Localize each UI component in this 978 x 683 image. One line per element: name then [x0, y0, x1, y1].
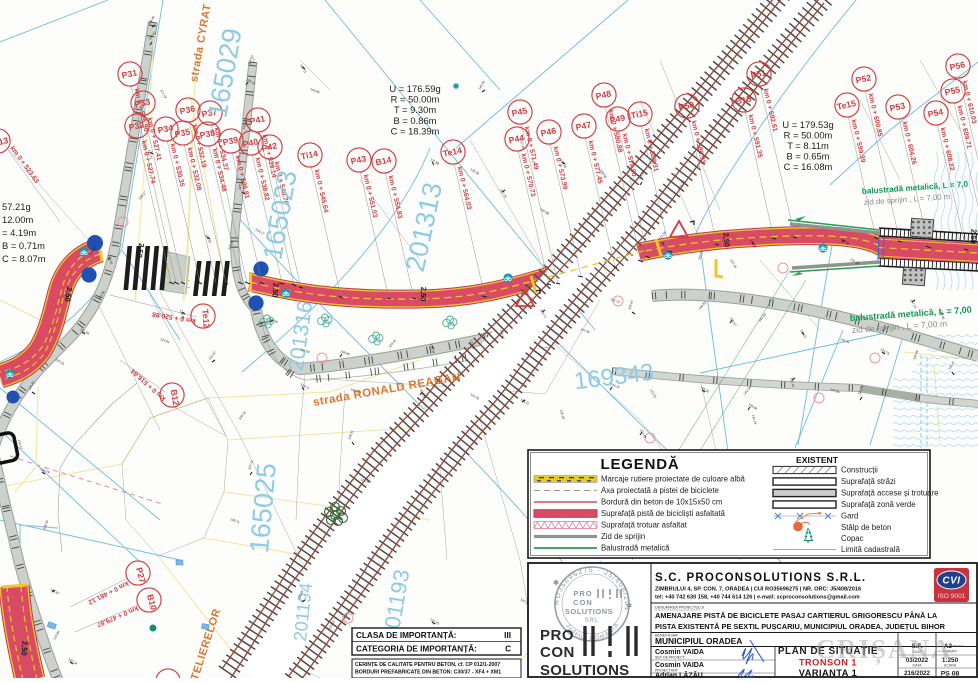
svg-text:S.C. PROCONSOLUTIONS S.R.L.: S.C. PROCONSOLUTIONS S.R.L. [655, 572, 866, 584]
svg-text:U = 179.53g: U = 179.53g [782, 119, 833, 130]
svg-text:Construcții: Construcții [841, 466, 878, 475]
svg-text:= 4.19m: = 4.19m [2, 227, 36, 238]
svg-text:Limită cadastrală: Limită cadastrală [841, 545, 901, 554]
svg-text:Marcaje rutiere proiectate de: Marcaje rutiere proiectate de culoare al… [601, 475, 746, 484]
svg-text:R = 50.00m: R = 50.00m [391, 94, 440, 105]
svg-text:LEGENDĂ: LEGENDĂ [601, 456, 680, 473]
svg-text:U = 176.59g: U = 176.59g [389, 83, 440, 94]
svg-text:ISO 9001: ISO 9001 [938, 593, 966, 600]
svg-text:Bordură din beton de 10x15x50: Bordură din beton de 10x15x50 cm [601, 498, 722, 507]
svg-text:MUNICIPIUL ORADEA: MUNICIPIUL ORADEA [655, 636, 742, 646]
svg-text:Te12: Te12 [200, 309, 212, 329]
svg-text:Suprafață străzi: Suprafață străzi [841, 477, 896, 486]
svg-text:CLASA DE IMPORTANȚĂ:: CLASA DE IMPORTANȚĂ: [356, 630, 457, 640]
svg-text:Suprafață trotuar asfaltat: Suprafață trotuar asfaltat [601, 521, 688, 530]
svg-text:216/2022: 216/2022 [904, 670, 930, 677]
svg-text:2,50: 2,50 [721, 232, 731, 247]
svg-text:R = 50.00m: R = 50.00m [784, 130, 833, 141]
svg-text:CON: CON [540, 644, 575, 661]
svg-text:DENUMIREA PROIECTULUI: DENUMIREA PROIECTULUI [655, 606, 704, 610]
svg-text:Axa proiectată a pistei de bic: Axa proiectată a pistei de biciclete [601, 486, 719, 495]
svg-text:297x420: 297x420 [953, 644, 964, 648]
svg-text:SCARA: SCARA [944, 664, 957, 668]
svg-text:T = 8.11m: T = 8.11m [787, 140, 829, 151]
svg-text:B = 0.86m: B = 0.86m [394, 115, 437, 126]
svg-text:CATEGORIA DE IMPORTANȚĂ:: CATEGORIA DE IMPORTANȚĂ: [356, 644, 477, 654]
svg-text:CON: CON [573, 598, 593, 607]
svg-text:ZIMBRULUI 4, SP. CON. 7, ORAD: ZIMBRULUI 4, SP. CON. 7, ORADEA | CUI RO… [655, 587, 861, 593]
svg-text:tel: +40 742 630 158, +40 744: tel: +40 742 630 158, +40 744 614 126 | … [655, 595, 860, 601]
svg-text:SOLUTIONS: SOLUTIONS [540, 662, 629, 678]
svg-text:Zid de sprijin: Zid de sprijin [601, 532, 645, 541]
svg-text:VARIANTA 1: VARIANTA 1 [799, 668, 857, 678]
svg-text:BORDURI PREFABRICATE DIN BETON: BORDURI PREFABRICATE DIN BETON: C30/37 -… [355, 670, 501, 676]
svg-text:PISTA EXISTENTĂ PE SEXTIL PUȘC: PISTA EXISTENTĂ PE SEXTIL PUȘCARIU, MUNI… [655, 622, 946, 631]
svg-text:Copac: Copac [841, 534, 864, 543]
svg-text:DATA: DATA [912, 664, 922, 668]
svg-text:EXISTENT: EXISTENT [796, 455, 839, 465]
svg-text:C = 8.07m: C = 8.07m [2, 253, 46, 264]
svg-text:III: III [504, 631, 511, 640]
svg-text:SOLUTIONS: SOLUTIONS [565, 607, 613, 616]
svg-text:Stâlp de beton: Stâlp de beton [841, 523, 891, 532]
svg-text:CRIȘANA: CRIȘANA [815, 634, 952, 665]
svg-text:57.21g: 57.21g [2, 201, 31, 212]
svg-text:C = 18.39m: C = 18.39m [391, 125, 440, 136]
svg-text:T = 9.30m: T = 9.30m [394, 104, 436, 115]
svg-text:PS 08: PS 08 [941, 671, 960, 678]
svg-text:C: C [505, 645, 511, 654]
svg-text:B = 0.65m: B = 0.65m [787, 151, 830, 162]
svg-text:CERINȚE DE CALITATE PENTRU BET: CERINȚE DE CALITATE PENTRU BETON, cf. CP… [355, 662, 500, 668]
svg-text:✱: ✱ [626, 602, 632, 610]
svg-text:PRO: PRO [540, 627, 574, 644]
svg-text:B = 0.71m: B = 0.71m [2, 240, 45, 251]
svg-text:2,50: 2,50 [419, 287, 429, 302]
svg-text:2,50: 2,50 [270, 283, 280, 298]
svg-text:CVI: CVI [942, 576, 960, 587]
svg-text:Suprafață pistă de bicicliști: Suprafață pistă de bicicliști asfaltată [601, 509, 726, 518]
svg-text:PRO: PRO [573, 589, 592, 598]
svg-text:12.00m: 12.00m [2, 214, 33, 225]
svg-text:✱: ✱ [553, 579, 559, 587]
svg-text:C = 16.08m: C = 16.08m [784, 161, 833, 172]
svg-text:2,50: 2,50 [968, 229, 978, 244]
svg-text:Gard: Gard [841, 512, 858, 521]
svg-text:Suprafață zonă verde: Suprafață zonă verde [841, 500, 916, 509]
svg-text:2,50: 2,50 [19, 641, 29, 656]
svg-text:Adrian LĂZĂU: Adrian LĂZĂU [655, 671, 703, 679]
svg-text:AMENAJARE PISTĂ DE BICICLETE P: AMENAJARE PISTĂ DE BICICLETE PASAJ CARTI… [655, 611, 938, 620]
svg-text:Balustradă metalică: Balustradă metalică [601, 544, 670, 553]
svg-text:Suprafață accese și trotuare: Suprafață accese și trotuare [841, 489, 939, 498]
svg-text:SRL: SRL [585, 618, 600, 624]
svg-text:ȘEF DE PROIECT: ȘEF DE PROIECT [655, 656, 686, 660]
